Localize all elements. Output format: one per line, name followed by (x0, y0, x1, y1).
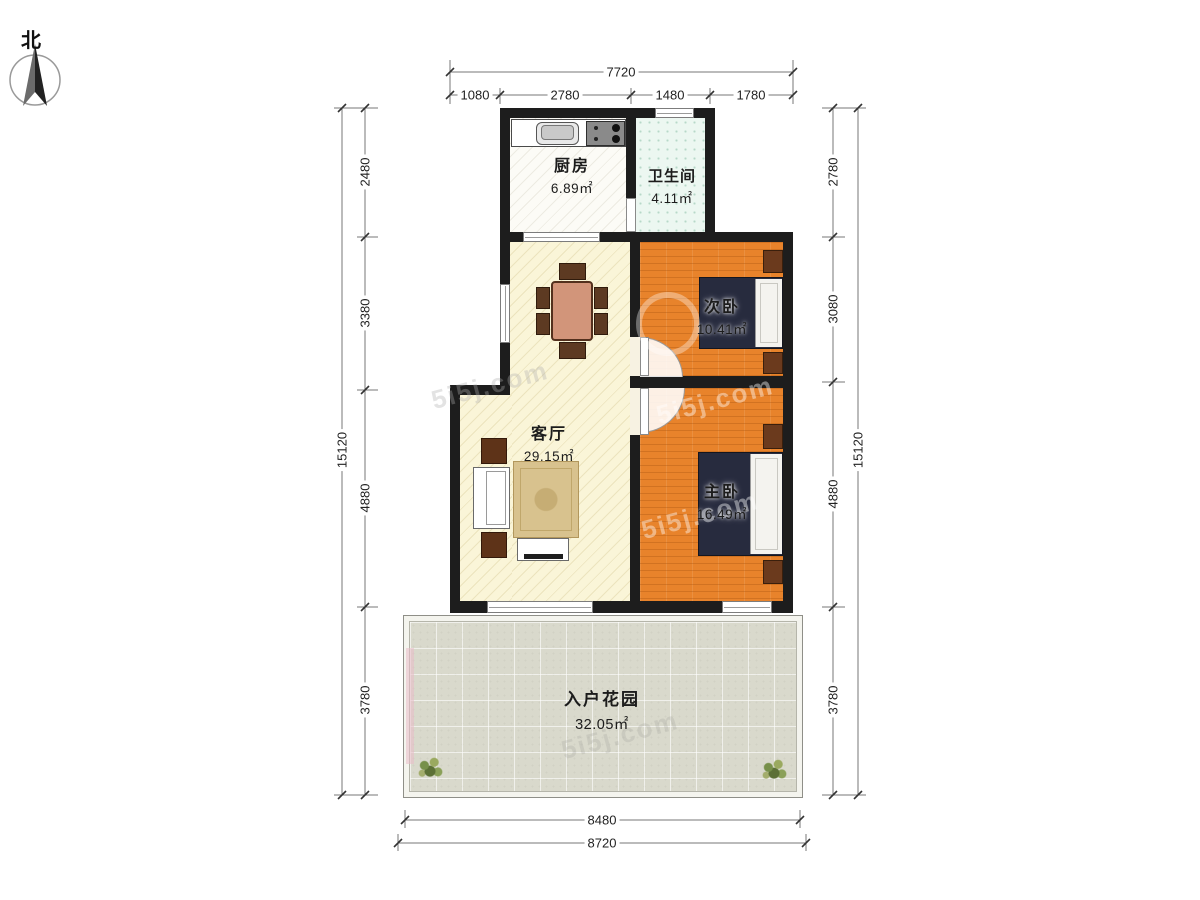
living-room-side-window (500, 284, 510, 343)
bathroom-window (655, 108, 694, 118)
dim-left-seg-1: 2480 (358, 155, 373, 190)
master-nightstand-top (763, 424, 783, 449)
kitchen-label: 厨房 6.89㎡ (551, 152, 593, 197)
dim-left-seg-3: 4880 (358, 481, 373, 516)
living-room-name: 客厅 (524, 420, 574, 444)
kitchen-sink-basin (541, 125, 574, 140)
wall-left-upper (500, 108, 510, 395)
stove-knob-1 (594, 126, 598, 130)
living-room-area: 29.15㎡ (524, 445, 574, 465)
master-bedroom-door (640, 388, 649, 435)
bathroom-door (626, 198, 636, 232)
dim-left-total: 15120 (335, 429, 350, 471)
stove-burner-2 (612, 135, 620, 143)
master-bedroom-area: 16.49㎡ (697, 503, 747, 523)
sofa (473, 467, 510, 529)
secondary-bedroom-area: 10.41㎡ (697, 318, 747, 338)
dim-left-seg-4: 3780 (358, 683, 373, 718)
master-bedroom-label: 主卧 16.49㎡ (697, 478, 747, 523)
dining-table (551, 281, 593, 341)
bathroom-name: 卫生间 (648, 165, 696, 186)
living-room-label: 客厅 29.15㎡ (524, 420, 574, 465)
master-bedroom-garden-window (722, 601, 772, 613)
kitchen-area: 6.89㎡ (551, 177, 593, 197)
master-bed-quilt (750, 454, 782, 554)
wall-bath-right (705, 108, 715, 242)
dim-right-seg-4: 3780 (826, 683, 841, 718)
secondary-nightstand-top (763, 250, 783, 273)
wall-right (783, 232, 793, 613)
entry-garden-label: 入户花园 32.05㎡ (564, 685, 640, 734)
north-compass-icon (0, 30, 90, 160)
dining-chair-top (559, 263, 586, 280)
master-nightstand-bottom (763, 560, 783, 584)
dim-top-seg-1: 1080 (458, 88, 493, 103)
wall-living-bedroom-lower (630, 435, 640, 601)
watermark-ring (636, 292, 700, 356)
secondary-nightstand-bottom (763, 352, 783, 374)
wall-left-lower (450, 385, 460, 613)
dim-left-seg-2: 3380 (358, 296, 373, 331)
dim-top-seg-2: 2780 (548, 88, 583, 103)
entry-garden-area: 32.05㎡ (564, 713, 640, 734)
dining-chair-left-2 (536, 313, 550, 335)
rug-pattern (520, 468, 572, 531)
dim-bottom-inner: 8480 (585, 813, 620, 828)
north-label: 北 (21, 24, 41, 53)
living-room-garden-window (487, 601, 593, 613)
secondary-bedroom-name: 次卧 (697, 293, 747, 317)
plant-right-icon (760, 757, 788, 783)
secondary-bed-pillows (755, 279, 782, 347)
garden-flower-bed (406, 648, 414, 764)
dim-right-seg-1: 2780 (826, 155, 841, 190)
stove-knob-2 (594, 137, 598, 141)
dim-top-seg-4: 1780 (734, 88, 769, 103)
dining-chair-bottom (559, 342, 586, 359)
dim-right-total: 15120 (851, 429, 866, 471)
kitchen-sliding-door (523, 232, 600, 242)
dim-bottom-outer: 8720 (585, 836, 620, 851)
floor-plan: 北 (0, 0, 1200, 900)
dim-top-seg-3: 1480 (653, 88, 688, 103)
kitchen-name: 厨房 (551, 152, 593, 176)
dining-chair-right-2 (594, 313, 608, 335)
dining-chair-right-1 (594, 287, 608, 309)
wall-bedroom-divider (630, 376, 793, 388)
bathroom-area: 4.11㎡ (648, 187, 696, 207)
master-bedroom-door-gap (630, 388, 640, 435)
wall-kitchen-bath-divider (626, 118, 636, 198)
secondary-bedroom-label: 次卧 10.41㎡ (697, 293, 747, 338)
dining-chair-left-1 (536, 287, 550, 309)
plant-left-icon (416, 755, 444, 781)
side-table-bottom (481, 532, 507, 558)
secondary-bedroom-door-gap (630, 337, 640, 376)
rug (513, 461, 579, 538)
master-bedroom-name: 主卧 (697, 478, 747, 502)
dim-right-seg-3: 4880 (826, 477, 841, 512)
dim-right-seg-2: 3080 (826, 292, 841, 327)
stove-burner-1 (612, 124, 620, 132)
entry-garden-name: 入户花园 (564, 685, 640, 710)
dim-top-total: 7720 (604, 65, 639, 80)
side-table-top (481, 438, 507, 464)
bathroom-label: 卫生间 4.11㎡ (648, 165, 696, 207)
tv-icon (524, 554, 563, 559)
